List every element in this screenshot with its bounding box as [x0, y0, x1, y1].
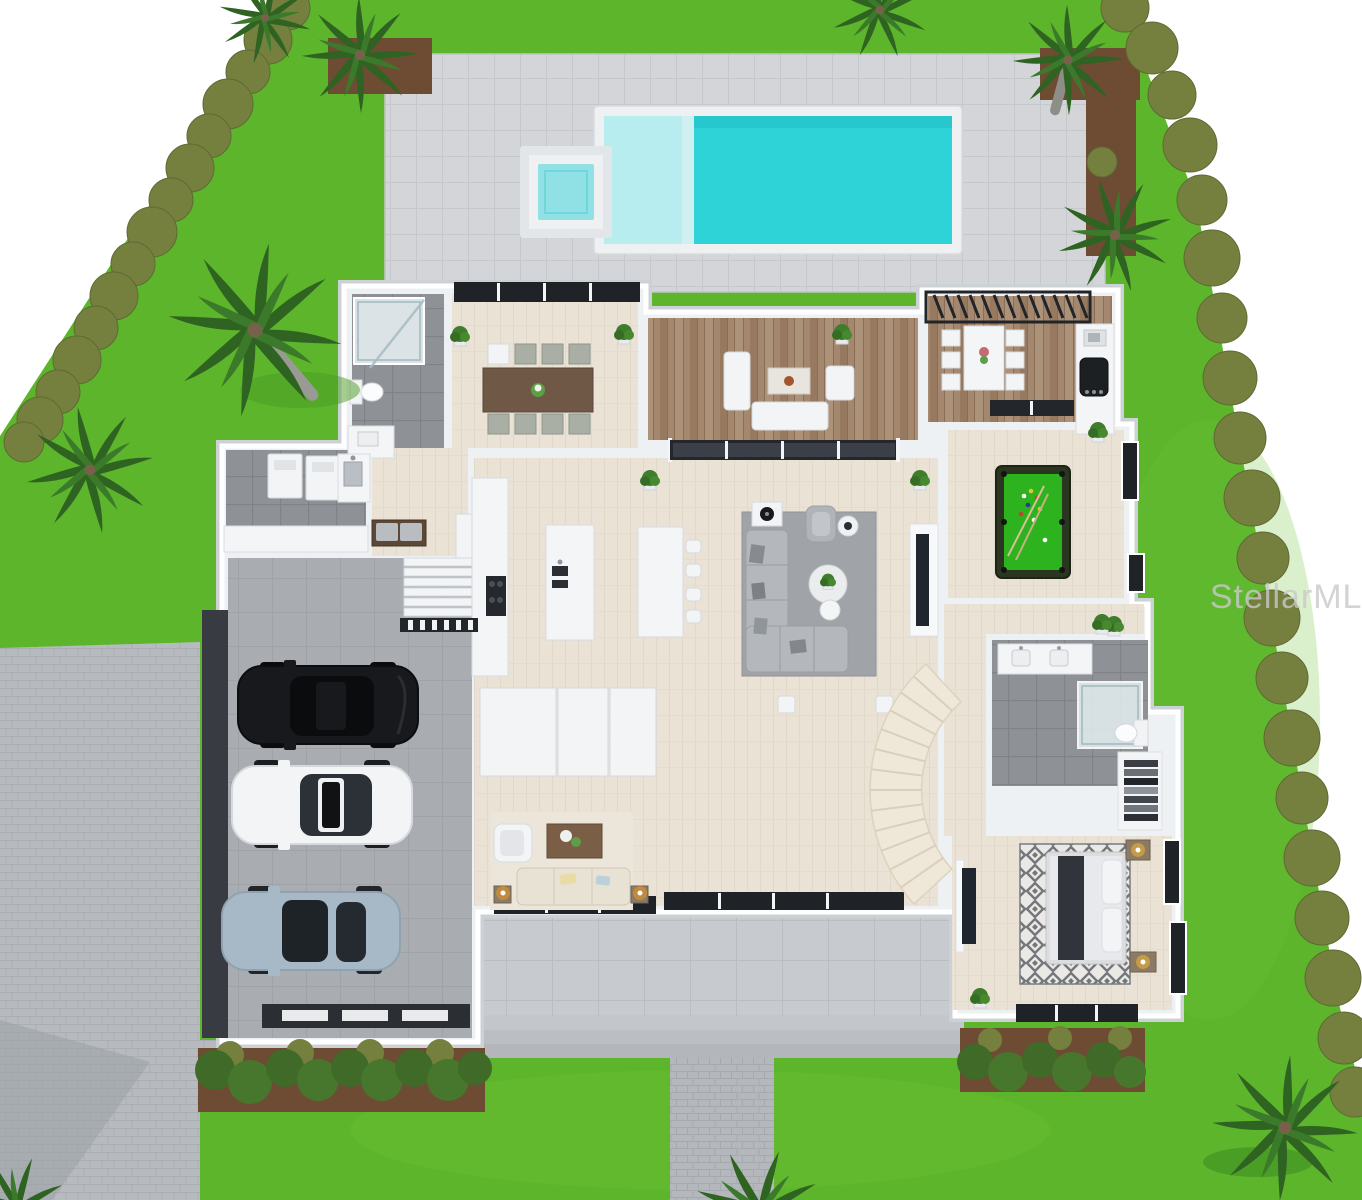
garage-steps — [400, 558, 478, 632]
outdoor-dining-set — [942, 326, 1024, 390]
watermark: StellarMLS — [1210, 578, 1362, 616]
toilet — [1115, 724, 1137, 742]
outdoor-dining-chair — [942, 374, 960, 390]
outdoor-sofa — [724, 352, 750, 410]
scene: StellarMLS — [0, 0, 1362, 1200]
dining-chair — [542, 414, 563, 434]
game-room-sliding-door — [990, 400, 1074, 416]
built-in-fridge — [456, 514, 472, 564]
bar-stool — [686, 564, 701, 577]
front-left-shrub-bed — [195, 1039, 492, 1112]
floor-plan-rendering: StellarMLS — [0, 0, 1362, 1200]
dining-window-wall — [454, 282, 640, 302]
bed-throw — [1058, 856, 1084, 960]
game-room-window — [1122, 442, 1138, 500]
dining-chair — [569, 344, 590, 364]
car-white — [232, 760, 412, 850]
shower — [354, 298, 424, 364]
front-step — [458, 1044, 972, 1058]
bar-stool — [686, 540, 701, 553]
outdoor-dining-chair — [1006, 374, 1024, 390]
pool-steps — [682, 116, 694, 244]
dining-chair — [569, 414, 590, 434]
bedroom-front-window — [1016, 1004, 1138, 1022]
pillow — [1102, 908, 1122, 952]
bar-stool — [686, 588, 701, 601]
front-walkway — [670, 1058, 774, 1200]
outdoor-sofa — [752, 402, 828, 430]
folding-counter — [224, 526, 368, 552]
outdoor-dining-chair — [942, 352, 960, 368]
dining-chair — [515, 414, 536, 434]
billiards-table — [996, 466, 1070, 578]
dining-chair — [488, 344, 509, 364]
tv — [962, 868, 976, 944]
game-room-window — [1128, 554, 1144, 592]
garage-door — [262, 1004, 470, 1028]
dining-chair — [542, 344, 563, 364]
tv — [916, 534, 929, 626]
bedroom-side-window — [1170, 922, 1186, 994]
garage-side-wall — [202, 610, 228, 1038]
outdoor-dining-chair — [1006, 330, 1024, 346]
outdoor-kitchen — [1076, 324, 1114, 434]
front-step — [464, 1030, 970, 1044]
bedroom-side-window — [1164, 840, 1180, 904]
front-step — [470, 1016, 964, 1030]
closet — [558, 688, 608, 776]
round-side-table — [820, 600, 840, 620]
closet — [610, 688, 656, 776]
master-hall-floor — [944, 634, 986, 836]
spa — [520, 146, 612, 238]
range-cooktop — [486, 576, 506, 616]
toilet — [361, 383, 383, 401]
car-silver — [222, 886, 400, 976]
dining-chair — [515, 344, 536, 364]
tanning-ledge — [604, 116, 682, 244]
dining-chair — [488, 414, 509, 434]
outdoor-chair — [826, 366, 854, 400]
kitchen-island-seating — [638, 527, 683, 637]
front-right-shrub-bed — [957, 1026, 1146, 1092]
outdoor-dining-chair — [1006, 352, 1024, 368]
outdoor-dining-chair — [942, 330, 960, 346]
hedge-bush — [1087, 147, 1117, 177]
bar-stool — [686, 610, 701, 623]
pool-water — [694, 116, 952, 244]
pouf — [778, 696, 795, 713]
lanai-sliding-doors — [668, 438, 900, 462]
pillow — [1102, 860, 1122, 904]
closet — [480, 688, 556, 776]
car-black — [238, 660, 418, 750]
